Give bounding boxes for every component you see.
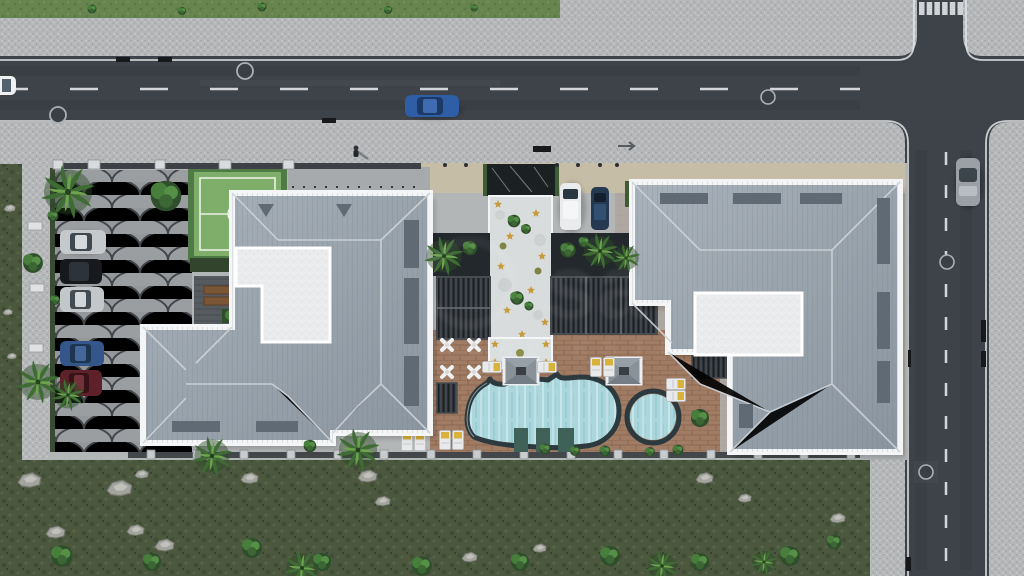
watermark-secondary-text: REAL ESTATE	[438, 336, 741, 361]
car-white-parked	[558, 182, 586, 234]
car-silver	[58, 230, 110, 255]
car-white-edge	[0, 76, 16, 95]
north-sidewalk-extension	[560, 0, 870, 20]
gazebo-west	[504, 358, 538, 384]
pergola-poolside	[437, 383, 457, 413]
north-grass-strip	[0, 0, 580, 20]
car-silver-side-road	[955, 157, 983, 209]
car-navy-parked	[591, 187, 609, 230]
south-wild-grass	[0, 458, 872, 576]
north-wall	[53, 163, 421, 169]
west-walkway	[22, 163, 50, 460]
aerial-site-render: sa REAL ESTATE	[0, 0, 1024, 576]
west-hedge	[50, 168, 55, 452]
grass-by-side-road	[850, 453, 870, 576]
car-blue	[60, 341, 104, 366]
marble-entrance	[487, 164, 555, 196]
car-black	[60, 259, 102, 284]
watermark-primary-text: sa	[545, 236, 648, 338]
car-blue-main-road	[405, 95, 462, 119]
car-silver	[60, 287, 104, 312]
concrete-pad	[288, 167, 430, 192]
